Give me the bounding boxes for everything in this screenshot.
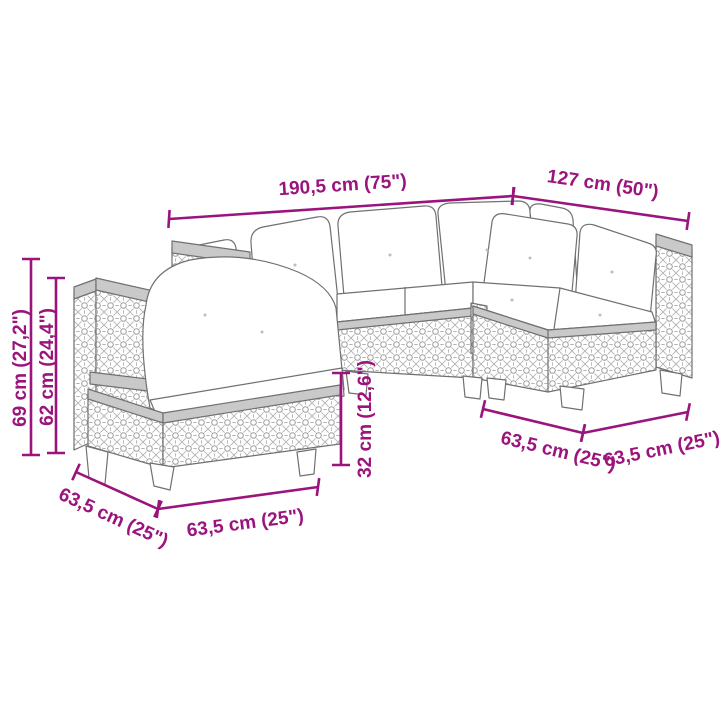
- dimension-diagram-svg: 190,5 cm (75") 127 cm (50") 69 cm (27,2"…: [0, 0, 720, 720]
- right-end-panel: [656, 234, 692, 378]
- label-right-width: 127 cm (50"): [546, 166, 660, 203]
- foot: [150, 463, 174, 490]
- corner-chair: [74, 257, 344, 490]
- foot: [660, 370, 682, 396]
- label-right-module-width: 63,5 cm (25"): [602, 428, 720, 472]
- label-back-height: 62 cm (24,4"): [37, 308, 58, 426]
- label-chair-side-depth: 63,5 cm (25"): [55, 484, 171, 552]
- foot: [463, 376, 482, 399]
- foot: [487, 378, 506, 400]
- product-dimension-diagram: 190,5 cm (75") 127 cm (50") 69 cm (27,2"…: [0, 0, 720, 720]
- foot: [297, 449, 316, 476]
- label-total-width: 190,5 cm (75"): [278, 171, 407, 200]
- label-chair-front-width: 63,5 cm (25"): [186, 505, 306, 541]
- label-overall-height: 69 cm (27,2"): [10, 309, 31, 427]
- foot: [560, 386, 584, 410]
- label-seat-height: 32 cm (12,6"): [355, 360, 376, 478]
- label-right-module-depth: 63,5 cm (25"): [499, 428, 618, 476]
- sofa-line-drawing: [74, 201, 692, 490]
